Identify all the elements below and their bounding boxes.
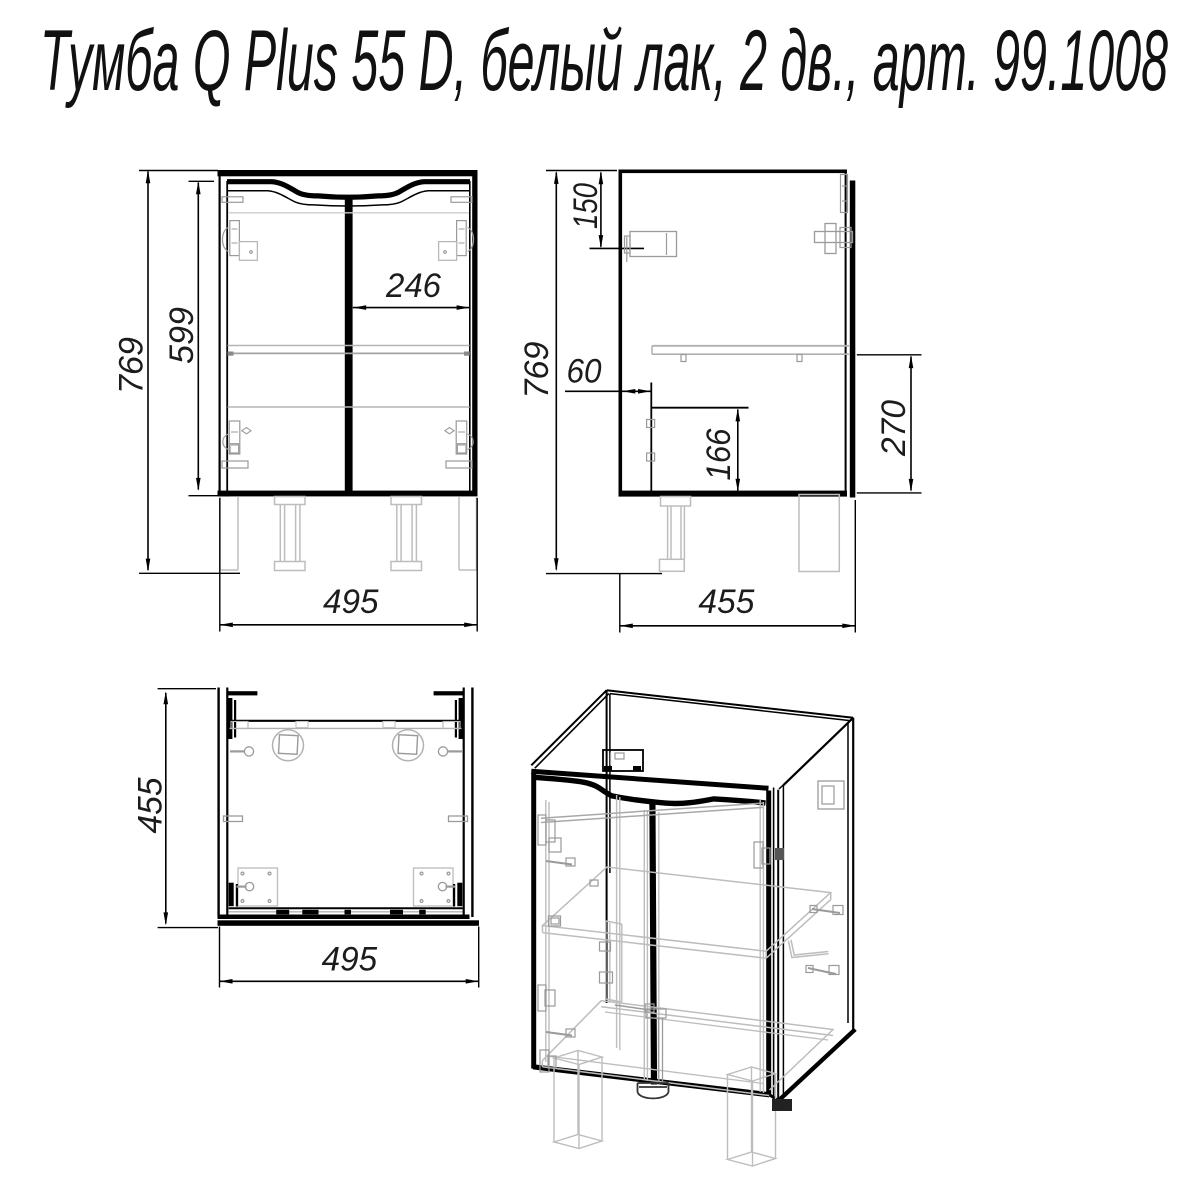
svg-text:246: 246 xyxy=(385,267,441,305)
svg-text:495: 495 xyxy=(323,583,379,621)
svg-text:769: 769 xyxy=(113,337,151,394)
svg-text:Тумба Q Plus 55 D, белый лак,: Тумба Q Plus 55 D, белый лак, 2 дв., арт… xyxy=(40,13,1168,109)
svg-text:60: 60 xyxy=(567,353,602,391)
svg-text:495: 495 xyxy=(322,941,378,979)
svg-text:455: 455 xyxy=(131,777,169,833)
svg-text:599: 599 xyxy=(163,307,201,364)
svg-text:769: 769 xyxy=(518,341,556,398)
svg-text:166: 166 xyxy=(700,428,738,480)
svg-text:270: 270 xyxy=(875,400,913,457)
svg-text:150: 150 xyxy=(567,183,605,229)
svg-text:455: 455 xyxy=(698,583,754,621)
